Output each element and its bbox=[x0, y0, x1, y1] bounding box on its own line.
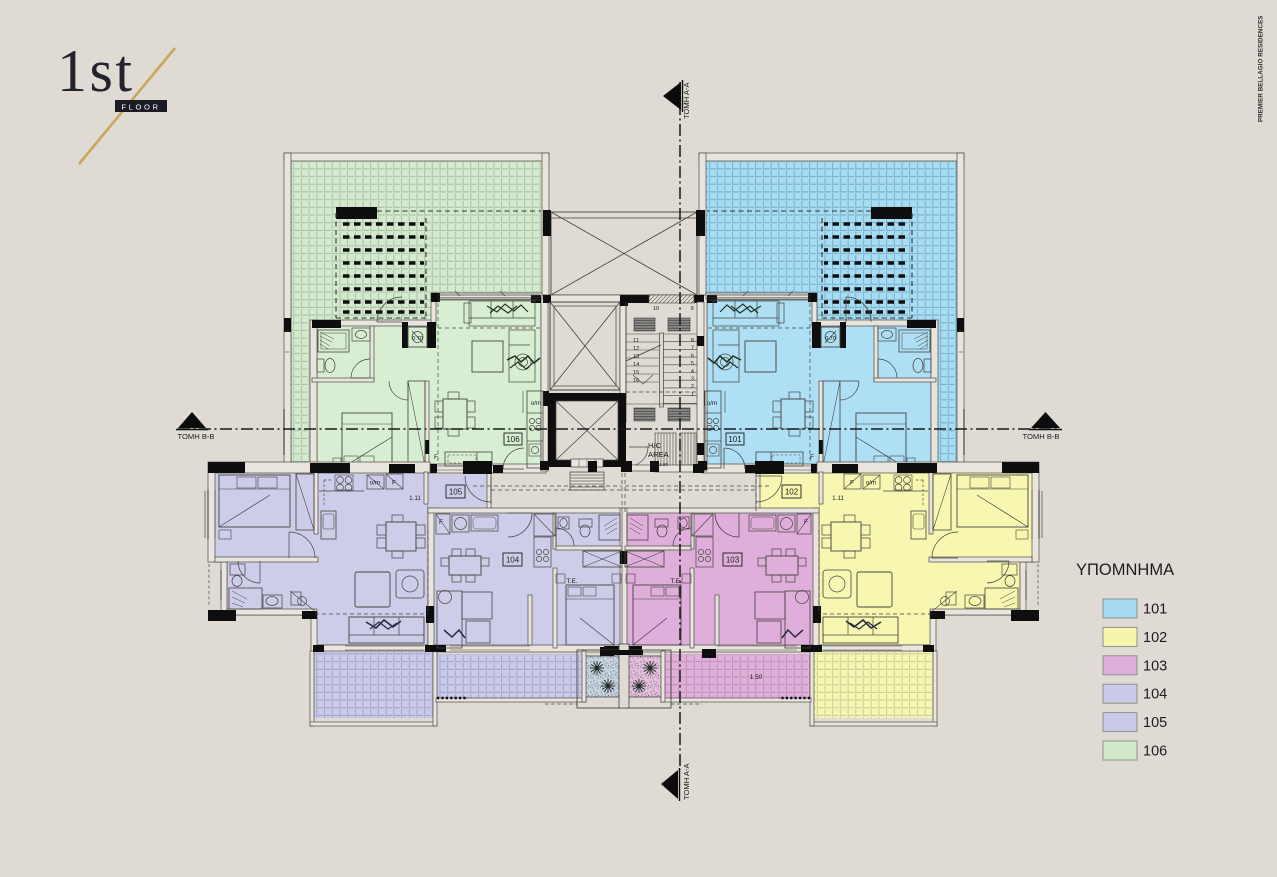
svg-text:11: 11 bbox=[633, 338, 639, 344]
svg-text:ΤΟΜΗ Β-Β: ΤΟΜΗ Β-Β bbox=[1023, 432, 1060, 441]
svg-text:ΠΕ=1.90: ΠΕ=1.90 bbox=[650, 462, 668, 467]
svg-text:F: F bbox=[850, 480, 854, 487]
svg-text:104: 104 bbox=[506, 555, 520, 564]
svg-text:10: 10 bbox=[653, 306, 659, 312]
svg-text:F: F bbox=[439, 519, 443, 526]
svg-text:9: 9 bbox=[690, 306, 693, 312]
svg-text:0.70: 0.70 bbox=[412, 336, 422, 342]
svg-text:7: 7 bbox=[691, 346, 694, 352]
svg-text:102: 102 bbox=[785, 487, 799, 496]
svg-text:F: F bbox=[810, 454, 814, 461]
svg-text:ΤΟΜΗ Α-Α: ΤΟΜΗ Α-Α bbox=[682, 762, 691, 800]
svg-text:15: 15 bbox=[633, 370, 639, 376]
svg-text:AREA: AREA bbox=[648, 450, 670, 459]
svg-text:3: 3 bbox=[691, 377, 694, 383]
svg-text:1: 1 bbox=[691, 392, 694, 398]
svg-text:105: 105 bbox=[449, 487, 463, 496]
svg-text:FLOOR: FLOOR bbox=[121, 103, 160, 112]
svg-text:14: 14 bbox=[633, 362, 639, 368]
svg-text:1.50: 1.50 bbox=[750, 674, 763, 681]
svg-text:13: 13 bbox=[633, 354, 639, 360]
svg-text:16: 16 bbox=[633, 378, 639, 384]
svg-text:o/m: o/m bbox=[866, 480, 877, 487]
svg-text:101: 101 bbox=[1143, 602, 1167, 618]
svg-text:F: F bbox=[434, 454, 438, 461]
svg-text:103: 103 bbox=[1143, 658, 1167, 674]
svg-text:T.E.: T.E. bbox=[566, 578, 577, 585]
svg-text:1st: 1st bbox=[57, 38, 135, 104]
svg-text:105: 105 bbox=[1143, 715, 1167, 731]
svg-text:8: 8 bbox=[691, 338, 694, 344]
svg-text:o/m: o/m bbox=[370, 480, 381, 487]
svg-text:o/m: o/m bbox=[707, 400, 718, 407]
svg-text:6: 6 bbox=[691, 353, 694, 359]
svg-text:106: 106 bbox=[1143, 744, 1167, 760]
svg-text:103: 103 bbox=[726, 555, 740, 564]
svg-text:F: F bbox=[804, 519, 808, 526]
svg-text:1.11: 1.11 bbox=[409, 495, 421, 502]
svg-text:101: 101 bbox=[728, 435, 742, 444]
svg-text:4: 4 bbox=[691, 369, 694, 375]
svg-text:ΤΟΜΗ Β-Β: ΤΟΜΗ Β-Β bbox=[178, 432, 215, 441]
svg-text:5: 5 bbox=[691, 361, 694, 367]
svg-text:H/C: H/C bbox=[648, 441, 662, 450]
svg-text:2: 2 bbox=[691, 384, 694, 390]
svg-text:102: 102 bbox=[1143, 630, 1167, 646]
svg-text:o/m: o/m bbox=[531, 400, 542, 407]
svg-text:ΥΠΟΜΝΗΜΑ: ΥΠΟΜΝΗΜΑ bbox=[1076, 561, 1174, 579]
svg-text:F: F bbox=[392, 480, 396, 487]
svg-text:104: 104 bbox=[1143, 687, 1167, 703]
svg-text:PREMIER BELLAGIO RESIDENCES: PREMIER BELLAGIO RESIDENCES bbox=[1258, 15, 1265, 122]
svg-text:1.11: 1.11 bbox=[832, 495, 844, 502]
svg-text:106: 106 bbox=[506, 435, 520, 444]
svg-text:12: 12 bbox=[633, 346, 639, 352]
svg-text:ΤΟΜΗ Α-Α: ΤΟΜΗ Α-Α bbox=[682, 81, 691, 119]
svg-text:0.70: 0.70 bbox=[825, 336, 835, 342]
svg-text:T.E.: T.E. bbox=[670, 578, 681, 585]
